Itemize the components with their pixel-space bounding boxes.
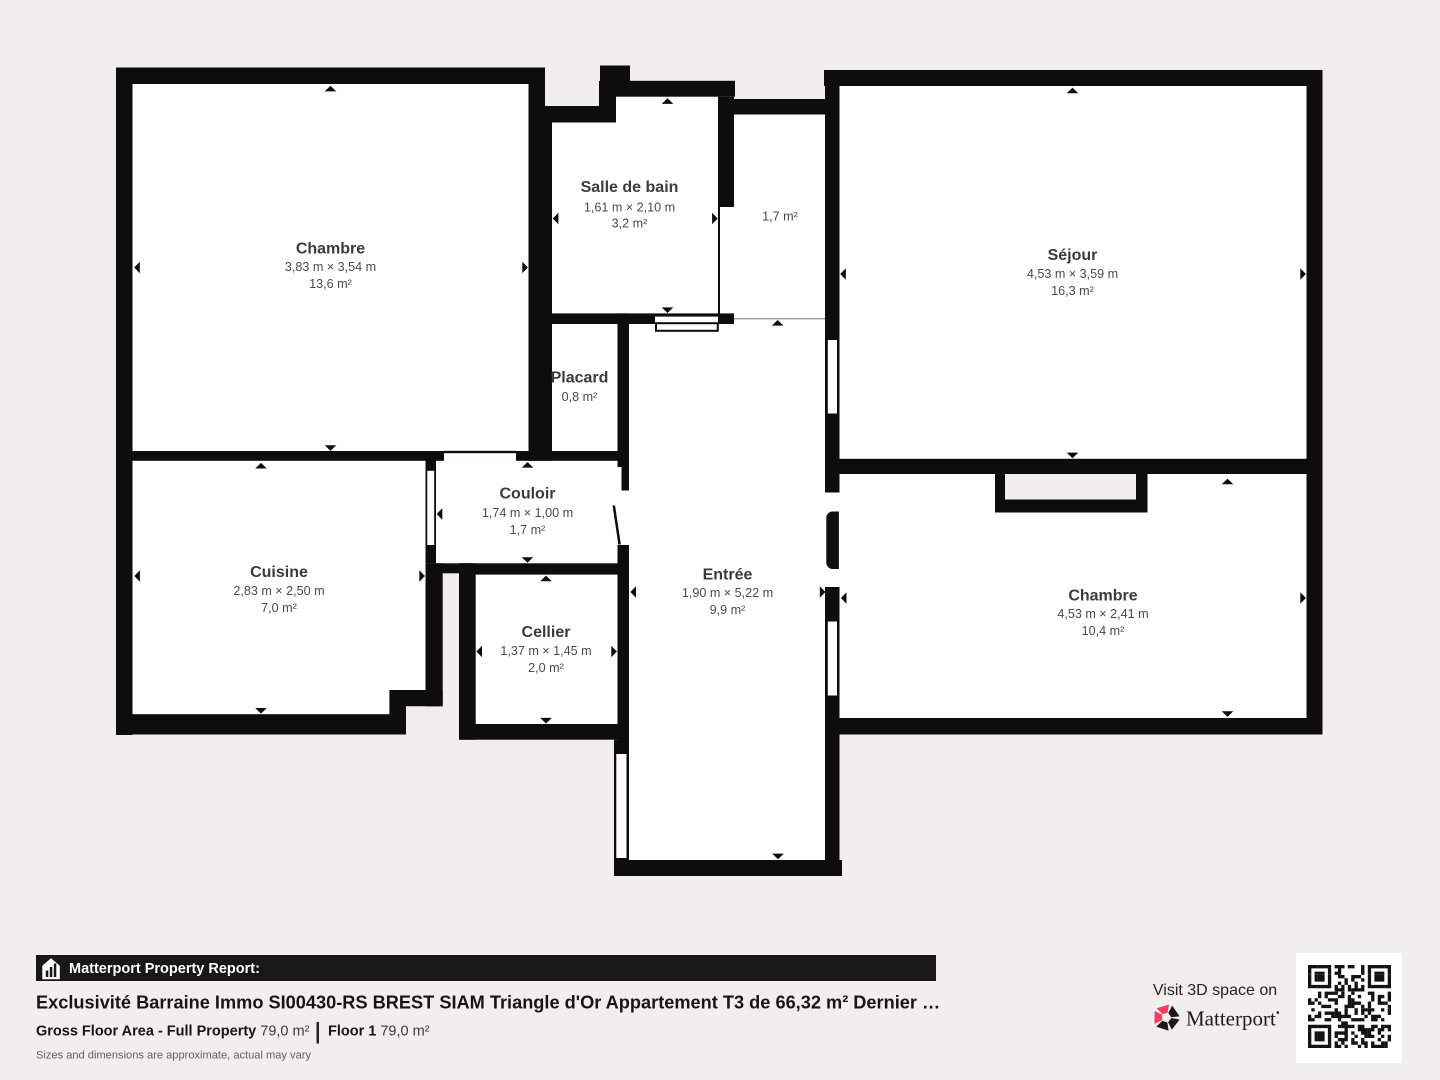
svg-text:Matterport Property Report:: Matterport Property Report:: [69, 961, 260, 977]
svg-text:1,90 m × 5,22 m: 1,90 m × 5,22 m: [682, 586, 773, 600]
svg-text:Entrée: Entrée: [703, 567, 753, 584]
svg-text:2,83 m × 2,50 m: 2,83 m × 2,50 m: [233, 584, 324, 598]
svg-text:Cellier: Cellier: [522, 624, 571, 641]
svg-text:0,8 m²: 0,8 m²: [562, 390, 598, 404]
svg-text:1,37 m × 1,45 m: 1,37 m × 1,45 m: [500, 644, 591, 658]
svg-text:Sizes and dimensions are appro: Sizes and dimensions are approximate, ac…: [36, 1050, 311, 1062]
svg-text:Couloir: Couloir: [500, 486, 556, 503]
svg-text:Floor 1 79,0 m²: Floor 1 79,0 m²: [328, 1023, 430, 1039]
svg-text:10,4 m²: 10,4 m²: [1082, 624, 1125, 638]
svg-text:Placard: Placard: [551, 370, 609, 387]
svg-text:4,53 m × 3,59 m: 4,53 m × 3,59 m: [1027, 267, 1118, 281]
svg-text:Chambre: Chambre: [296, 241, 365, 258]
svg-text:Salle de bain: Salle de bain: [581, 179, 679, 196]
svg-text:Visit 3D space on: Visit 3D space on: [1153, 982, 1277, 999]
svg-text:13,6 m²: 13,6 m²: [309, 277, 352, 291]
svg-text:1,7 m²: 1,7 m²: [510, 523, 546, 537]
svg-text:Exclusivité Barraine Immo SI00: Exclusivité Barraine Immo SI00430-RS BRE…: [36, 992, 940, 1012]
svg-text:1,74 m × 1,00 m: 1,74 m × 1,00 m: [482, 506, 573, 520]
svg-text:1,7 m²: 1,7 m²: [762, 210, 798, 224]
svg-text:Gross Floor Area - Full Proper: Gross Floor Area - Full Property 79,0 m²: [36, 1023, 310, 1039]
svg-text:3,2 m²: 3,2 m²: [612, 217, 648, 231]
svg-text:3,83 m × 3,54 m: 3,83 m × 3,54 m: [285, 260, 376, 274]
svg-text:4,53 m × 2,41 m: 4,53 m × 2,41 m: [1057, 607, 1148, 621]
svg-text:7,0 m²: 7,0 m²: [261, 601, 297, 615]
svg-text:1,61 m × 2,10 m: 1,61 m × 2,10 m: [584, 201, 675, 215]
svg-text:Cuisine: Cuisine: [250, 564, 308, 581]
svg-text:Séjour: Séjour: [1048, 247, 1098, 264]
svg-text:Matterport: Matterport: [1186, 1007, 1276, 1031]
svg-text:2,0 m²: 2,0 m²: [528, 661, 564, 675]
svg-text:16,3 m²: 16,3 m²: [1051, 284, 1094, 298]
svg-text:9,9 m²: 9,9 m²: [710, 603, 746, 617]
svg-text:Chambre: Chambre: [1068, 588, 1137, 605]
